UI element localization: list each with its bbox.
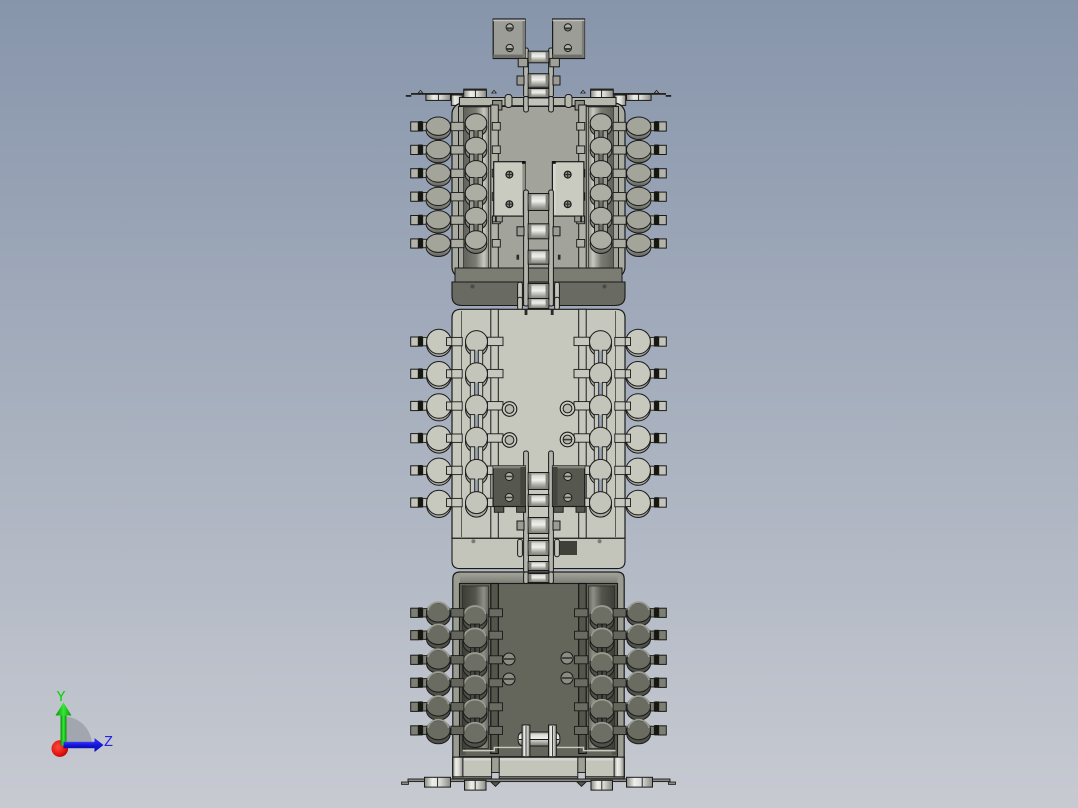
svg-text:Y: Y [57, 689, 66, 706]
svg-text:Z: Z [104, 734, 113, 751]
